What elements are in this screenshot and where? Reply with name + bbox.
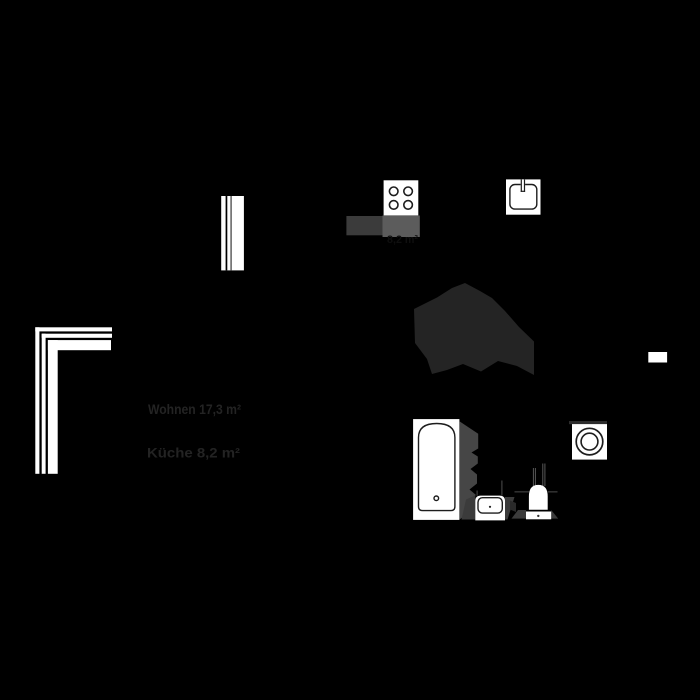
svg-text:8,2 m²: 8,2 m² — [387, 234, 418, 246]
svg-text:Küche 8,2 m²: Küche 8,2 m² — [147, 445, 240, 461]
svg-text:Wohnen 17,3 m²: Wohnen 17,3 m² — [148, 401, 241, 417]
